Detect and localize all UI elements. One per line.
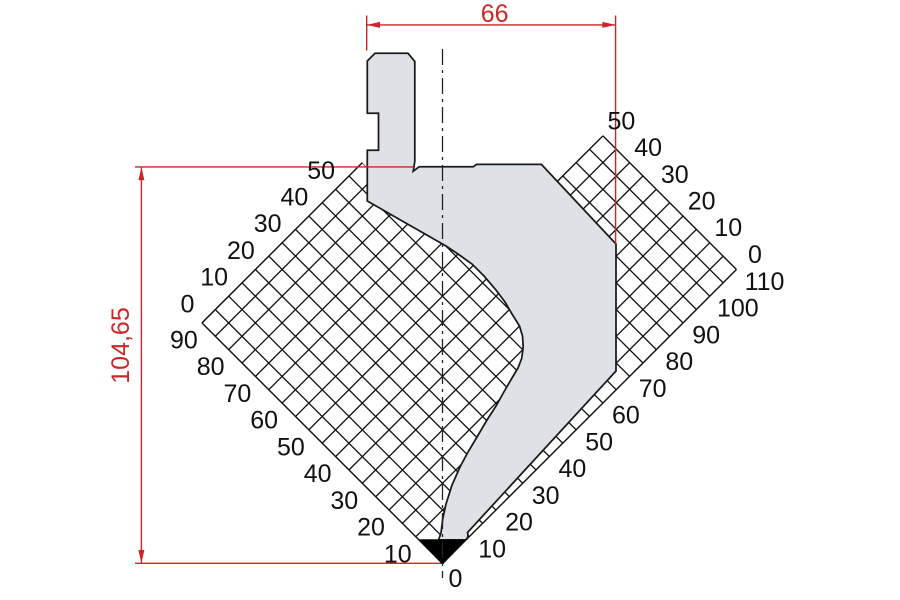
- svg-text:10: 10: [714, 214, 742, 242]
- svg-text:10: 10: [200, 264, 228, 292]
- svg-text:30: 30: [254, 210, 282, 238]
- svg-text:40: 40: [558, 455, 586, 483]
- svg-text:50: 50: [607, 107, 635, 135]
- svg-text:0: 0: [449, 565, 463, 593]
- svg-text:90: 90: [692, 321, 720, 349]
- svg-text:104,65: 104,65: [107, 307, 135, 383]
- svg-text:66: 66: [481, 0, 509, 28]
- svg-text:60: 60: [250, 407, 278, 435]
- svg-text:80: 80: [665, 348, 693, 376]
- svg-text:20: 20: [227, 237, 255, 265]
- svg-text:50: 50: [307, 157, 335, 185]
- svg-text:50: 50: [585, 428, 613, 456]
- svg-text:70: 70: [223, 380, 251, 408]
- svg-text:40: 40: [304, 460, 332, 488]
- svg-text:40: 40: [280, 184, 308, 212]
- svg-text:40: 40: [634, 134, 662, 162]
- svg-text:80: 80: [197, 353, 225, 381]
- svg-text:100: 100: [717, 295, 759, 323]
- svg-text:70: 70: [639, 375, 667, 403]
- svg-text:20: 20: [357, 514, 385, 542]
- svg-text:30: 30: [532, 482, 560, 510]
- svg-text:50: 50: [277, 433, 305, 461]
- svg-text:0: 0: [748, 241, 762, 269]
- svg-text:20: 20: [688, 188, 716, 216]
- svg-text:10: 10: [478, 535, 506, 563]
- svg-text:20: 20: [505, 509, 533, 537]
- svg-text:30: 30: [330, 487, 358, 515]
- svg-text:0: 0: [180, 290, 194, 318]
- svg-text:10: 10: [384, 540, 412, 568]
- svg-text:30: 30: [661, 161, 689, 189]
- svg-text:90: 90: [170, 326, 198, 354]
- svg-text:110: 110: [745, 268, 785, 296]
- svg-text:60: 60: [612, 402, 640, 430]
